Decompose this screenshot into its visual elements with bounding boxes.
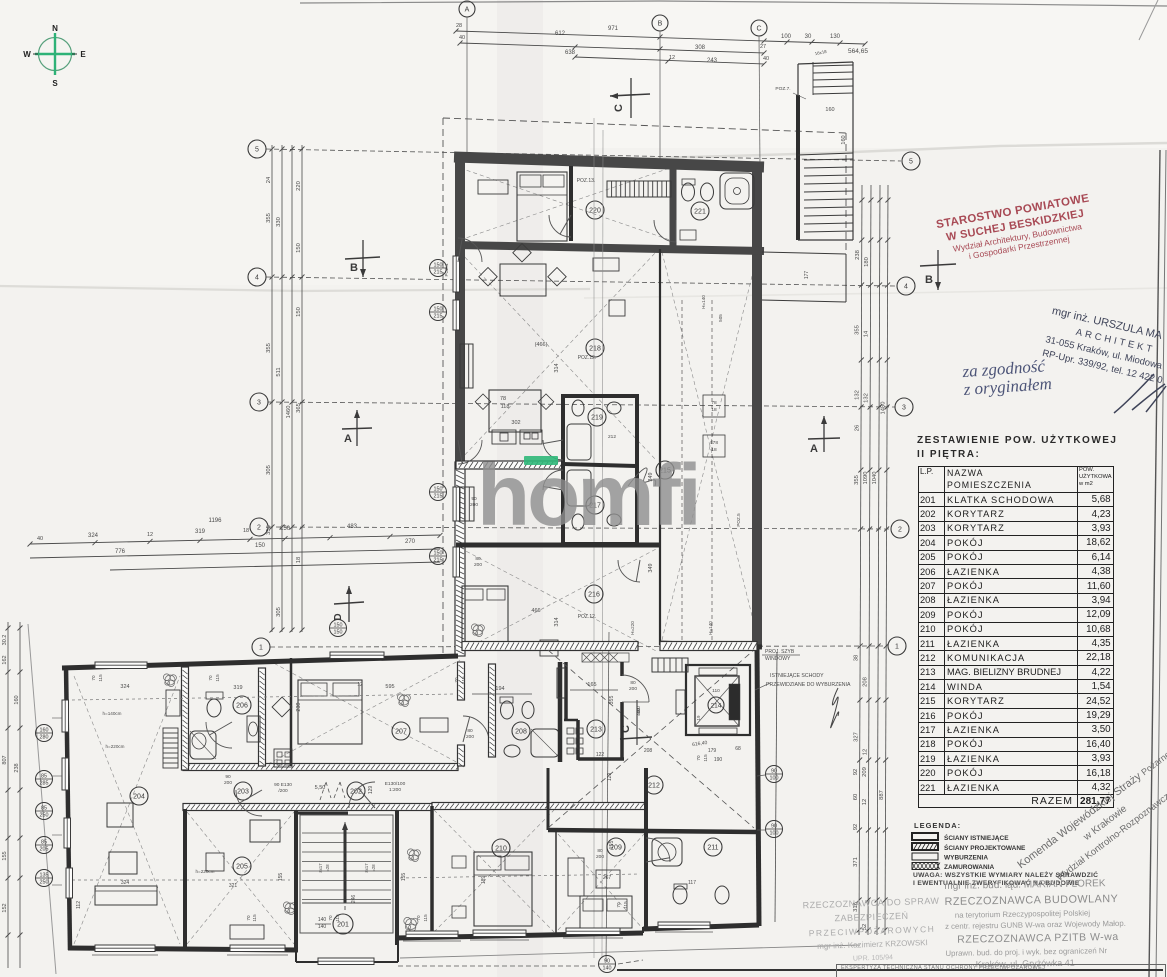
svg-text:612: 612	[555, 31, 566, 37]
svg-text:160: 160	[825, 107, 834, 113]
svg-text:135: 135	[40, 873, 49, 879]
svg-text:100: 100	[781, 34, 792, 40]
svg-text:12: 12	[147, 532, 153, 538]
svg-text:70: 70	[91, 675, 96, 681]
svg-text:12: 12	[669, 55, 675, 61]
svg-text:238: 238	[855, 250, 861, 260]
svg-text:355: 355	[266, 343, 272, 353]
svg-text:285: 285	[40, 781, 49, 787]
svg-text:208: 208	[644, 748, 653, 754]
svg-text:POZ.12.: POZ.12.	[578, 355, 597, 361]
svg-text:3: 3	[257, 400, 261, 407]
svg-text:200: 200	[629, 686, 637, 692]
svg-text:221: 221	[694, 209, 706, 216]
svg-text:H=220: H=220	[630, 621, 635, 635]
svg-text:W: W	[23, 50, 31, 59]
svg-text:130: 130	[830, 34, 841, 40]
svg-text:14: 14	[864, 330, 870, 337]
svg-text:90: 90	[225, 774, 231, 780]
svg-text:PROJ. SZYB: PROJ. SZYB	[765, 649, 795, 655]
svg-text:100: 100	[770, 776, 779, 782]
svg-text:250: 250	[40, 880, 49, 886]
svg-text:511: 511	[276, 367, 282, 376]
svg-text:212: 212	[608, 434, 616, 440]
svg-text:28: 28	[456, 23, 462, 29]
svg-text:270: 270	[405, 539, 416, 545]
svg-text:70: 70	[208, 675, 213, 681]
svg-text:314: 314	[554, 363, 560, 372]
svg-text:30.2: 30.2	[2, 635, 8, 646]
svg-text:207: 207	[395, 729, 407, 736]
svg-text:115: 115	[335, 914, 340, 922]
svg-text:213: 213	[590, 727, 602, 734]
svg-text:212: 212	[648, 783, 660, 790]
svg-text:239: 239	[296, 702, 302, 711]
svg-text:152: 152	[2, 903, 8, 912]
svg-text:117: 117	[688, 880, 696, 886]
svg-text:A: A	[465, 7, 470, 14]
svg-text:h=220cm: h=220cm	[105, 744, 124, 749]
svg-text:180: 180	[864, 257, 870, 267]
svg-text:160: 160	[14, 695, 20, 704]
svg-text:5: 5	[255, 147, 259, 154]
svg-text:140: 140	[603, 966, 612, 972]
svg-text:466: 466	[531, 608, 540, 614]
svg-text:1: 1	[895, 644, 899, 651]
svg-text:807: 807	[2, 755, 8, 764]
svg-text:324: 324	[88, 533, 99, 539]
svg-text:638: 638	[565, 50, 576, 56]
svg-text:216: 216	[588, 592, 600, 599]
svg-text:78: 78	[500, 396, 506, 402]
svg-text:18: 18	[296, 557, 302, 563]
svg-text:220: 220	[589, 208, 601, 215]
svg-text:115: 115	[703, 754, 708, 762]
svg-text:150: 150	[296, 243, 302, 253]
svg-text:211: 211	[707, 845, 718, 852]
svg-text:30: 30	[805, 34, 812, 40]
svg-text:85: 85	[41, 806, 47, 812]
svg-text:302: 302	[511, 420, 520, 426]
svg-text:70: 70	[696, 755, 701, 761]
svg-text:H=140: H=140	[701, 295, 706, 309]
svg-text:1480: 1480	[880, 402, 886, 415]
svg-text:200: 200	[596, 854, 604, 860]
svg-text:150: 150	[255, 543, 266, 549]
svg-text:209: 209	[862, 767, 868, 777]
svg-text:400: 400	[636, 706, 641, 714]
svg-text:80: 80	[597, 848, 603, 854]
svg-text:ŚCIANY ISTNIEJĄCE: ŚCIANY ISTNIEJĄCE	[944, 833, 1009, 842]
svg-text:40: 40	[763, 56, 769, 62]
svg-text:220: 220	[296, 181, 302, 191]
svg-text:308: 308	[695, 45, 706, 51]
svg-text:150: 150	[334, 630, 343, 636]
svg-text:26: 26	[854, 425, 860, 431]
svg-text:A: A	[810, 443, 818, 455]
svg-text:1196: 1196	[209, 518, 223, 524]
svg-text:162: 162	[2, 655, 8, 664]
svg-text:B: B	[925, 274, 933, 286]
svg-text:179: 179	[708, 748, 717, 754]
svg-text:4: 4	[904, 284, 908, 291]
svg-text:365: 365	[296, 403, 302, 413]
svg-text:90: 90	[604, 959, 610, 965]
svg-text:ZAMUROWANIA: ZAMUROWANIA	[944, 864, 994, 871]
svg-text:2: 2	[257, 525, 261, 532]
svg-text:5,50: 5,50	[315, 785, 326, 791]
svg-text:483: 483	[347, 524, 358, 530]
svg-text:267: 267	[603, 875, 612, 881]
svg-text:12: 12	[862, 799, 868, 805]
svg-text:150: 150	[434, 487, 443, 493]
svg-text:E130/100: E130/100	[385, 781, 406, 787]
svg-text:205: 205	[236, 864, 248, 871]
svg-text:971: 971	[608, 26, 619, 32]
svg-text:B: B	[658, 21, 663, 28]
svg-text:200: 200	[224, 780, 232, 786]
svg-text:115: 115	[252, 914, 257, 922]
svg-text:160: 160	[841, 135, 847, 144]
svg-text:90: 90	[771, 824, 777, 830]
svg-text:POZ.5: POZ.5	[736, 513, 741, 527]
svg-text:115: 115	[461, 676, 466, 684]
svg-text:8x17: 8x17	[364, 863, 369, 873]
svg-text:595: 595	[385, 684, 394, 690]
svg-text:C: C	[613, 104, 625, 112]
svg-text:200: 200	[474, 562, 482, 568]
svg-text:246: 246	[351, 895, 357, 904]
svg-text:70: 70	[328, 915, 333, 921]
svg-text:POZ.13.: POZ.13.	[577, 178, 596, 184]
svg-text:238: 238	[14, 763, 20, 772]
svg-text:330: 330	[276, 217, 282, 227]
svg-text:18: 18	[243, 528, 249, 534]
svg-text:115: 115	[215, 674, 220, 682]
svg-text:A: A	[344, 433, 352, 445]
svg-text:112: 112	[76, 901, 82, 909]
svg-text:140: 140	[318, 924, 327, 930]
svg-text:208: 208	[863, 677, 869, 687]
svg-text:324: 324	[121, 880, 130, 886]
svg-text:132: 132	[854, 390, 860, 400]
svg-text:WINDOWY: WINDOWY	[765, 656, 791, 662]
svg-text:355: 355	[266, 213, 272, 223]
svg-text:218: 218	[589, 346, 601, 353]
svg-text:N: N	[52, 24, 58, 33]
svg-text:1090: 1090	[863, 472, 869, 485]
svg-text:5: 5	[909, 159, 913, 166]
svg-text:319: 319	[233, 685, 242, 691]
svg-text:1040: 1040	[872, 472, 878, 485]
svg-text:305: 305	[276, 607, 282, 617]
svg-text:150: 150	[280, 526, 291, 532]
svg-text:150: 150	[434, 307, 443, 313]
svg-text:70: 70	[246, 915, 251, 921]
svg-text:WYBURZENIA: WYBURZENIA	[944, 855, 988, 862]
svg-text:150: 150	[334, 623, 343, 629]
svg-text:18: 18	[711, 407, 717, 413]
svg-text:324: 324	[120, 684, 129, 690]
svg-text:314: 314	[554, 617, 560, 626]
svg-text:355: 355	[855, 325, 861, 335]
svg-text:150: 150	[434, 263, 443, 269]
svg-text:349: 349	[648, 563, 654, 572]
svg-text:155: 155	[401, 873, 407, 882]
svg-text:4: 4	[255, 275, 259, 282]
svg-text:ISTNIEJĄCE SCHODY: ISTNIEJĄCE SCHODY	[770, 673, 824, 679]
svg-text:215: 215	[434, 314, 443, 320]
svg-text:POZ.7.: POZ.7.	[775, 86, 790, 92]
svg-text:115: 115	[623, 901, 628, 909]
svg-text:85: 85	[41, 840, 47, 846]
svg-text:100: 100	[770, 831, 779, 837]
svg-text:1: 1	[259, 645, 263, 652]
svg-text:38: 38	[854, 655, 860, 661]
svg-text:194: 194	[495, 686, 504, 692]
svg-text:27: 27	[760, 44, 766, 50]
svg-text:2: 2	[898, 527, 902, 534]
svg-text:319: 319	[195, 529, 206, 535]
svg-text:8x17: 8x17	[318, 863, 323, 873]
svg-text:132: 132	[863, 393, 869, 403]
svg-text:355: 355	[266, 525, 272, 535]
svg-text:189: 189	[481, 876, 487, 885]
svg-text:327: 327	[853, 732, 859, 742]
svg-text:70: 70	[416, 915, 421, 921]
svg-text:206: 206	[236, 703, 248, 710]
svg-text:60: 60	[853, 794, 859, 800]
svg-text:90: 90	[771, 769, 777, 775]
svg-text:40: 40	[37, 536, 43, 542]
svg-text:h=140cm: h=140cm	[102, 711, 121, 716]
svg-text:PRZEWIDZIANE DO WYBURZENIA: PRZEWIDZIANE DO WYBURZENIA	[766, 682, 851, 688]
svg-text:12: 12	[862, 749, 868, 755]
svg-text:305: 305	[266, 465, 272, 475]
svg-text:203: 203	[237, 789, 249, 796]
svg-text:85: 85	[41, 774, 47, 780]
svg-text:78: 78	[711, 400, 717, 406]
svg-text:LEGENDA:: LEGENDA:	[914, 821, 961, 830]
svg-text:18: 18	[711, 447, 717, 453]
svg-text:92: 92	[853, 824, 859, 830]
svg-text:C: C	[756, 26, 761, 33]
svg-text:ŚCIANY PROJEKTOWANE: ŚCIANY PROJEKTOWANE	[944, 843, 1026, 852]
svg-text:S: S	[52, 79, 58, 88]
svg-text:155: 155	[278, 873, 284, 882]
svg-text:115: 115	[98, 674, 103, 682]
svg-text:355: 355	[854, 475, 860, 485]
svg-text:70: 70	[616, 902, 621, 908]
svg-text:208: 208	[515, 729, 527, 736]
svg-text:40: 40	[459, 35, 465, 41]
svg-text:204: 204	[133, 794, 145, 801]
svg-text:219: 219	[591, 415, 603, 422]
svg-text:215: 215	[434, 270, 443, 276]
svg-text:115: 115	[423, 914, 428, 922]
svg-text:12: 12	[357, 682, 363, 688]
svg-text:80: 80	[630, 680, 636, 686]
svg-text:92: 92	[853, 769, 859, 775]
svg-text:80: 80	[475, 556, 481, 562]
svg-text:200: 200	[466, 734, 474, 740]
svg-text:505: 505	[718, 314, 723, 322]
svg-text:68: 68	[735, 746, 741, 752]
svg-text:209: 209	[610, 845, 622, 852]
svg-text:887: 887	[879, 790, 885, 800]
svg-text:h=220cm: h=220cm	[195, 869, 214, 874]
svg-text:(466): (466)	[535, 342, 548, 348]
svg-text:70: 70	[454, 677, 459, 683]
svg-text:177: 177	[804, 271, 810, 280]
svg-text:90 E130: 90 E130	[274, 782, 292, 788]
svg-text:122: 122	[596, 752, 605, 758]
svg-text:24: 24	[266, 176, 272, 183]
svg-text:150: 150	[434, 551, 443, 557]
svg-text:155: 155	[2, 851, 8, 860]
svg-text:E: E	[80, 50, 86, 59]
svg-text:POZ.4: POZ.4	[444, 263, 449, 277]
svg-text:776: 776	[115, 549, 126, 555]
svg-text:129: 129	[607, 773, 613, 782]
svg-text:564,65: 564,65	[848, 48, 868, 55]
svg-text:321: 321	[229, 883, 238, 889]
svg-text:118: 118	[501, 404, 510, 410]
svg-text:110: 110	[712, 688, 720, 694]
svg-text:=28: =28	[371, 864, 376, 872]
svg-text:250: 250	[40, 813, 49, 819]
svg-text:129: 129	[368, 786, 374, 795]
svg-text:215: 215	[434, 558, 443, 564]
svg-text:=28: =28	[325, 864, 330, 872]
svg-text:3: 3	[902, 405, 906, 412]
svg-text:80: 80	[467, 728, 473, 734]
svg-text:140: 140	[318, 917, 327, 923]
svg-text:19: 19	[696, 715, 701, 721]
svg-text:214: 214	[711, 702, 722, 709]
svg-text:160: 160	[40, 728, 49, 734]
svg-text:1460: 1460	[286, 406, 292, 419]
svg-text:150: 150	[296, 307, 302, 317]
svg-text:1:200: 1:200	[389, 787, 401, 793]
svg-text:205: 205	[40, 847, 49, 853]
svg-text:190: 190	[714, 757, 723, 763]
svg-text:/200: /200	[278, 788, 288, 794]
svg-text:243: 243	[707, 58, 718, 64]
svg-text:POZ.12.: POZ.12.	[578, 614, 597, 620]
svg-text:371: 371	[853, 857, 859, 867]
svg-text:B: B	[350, 262, 358, 274]
svg-text:178: 178	[710, 440, 718, 446]
svg-text:280: 280	[40, 735, 49, 741]
svg-text:215: 215	[434, 494, 443, 500]
